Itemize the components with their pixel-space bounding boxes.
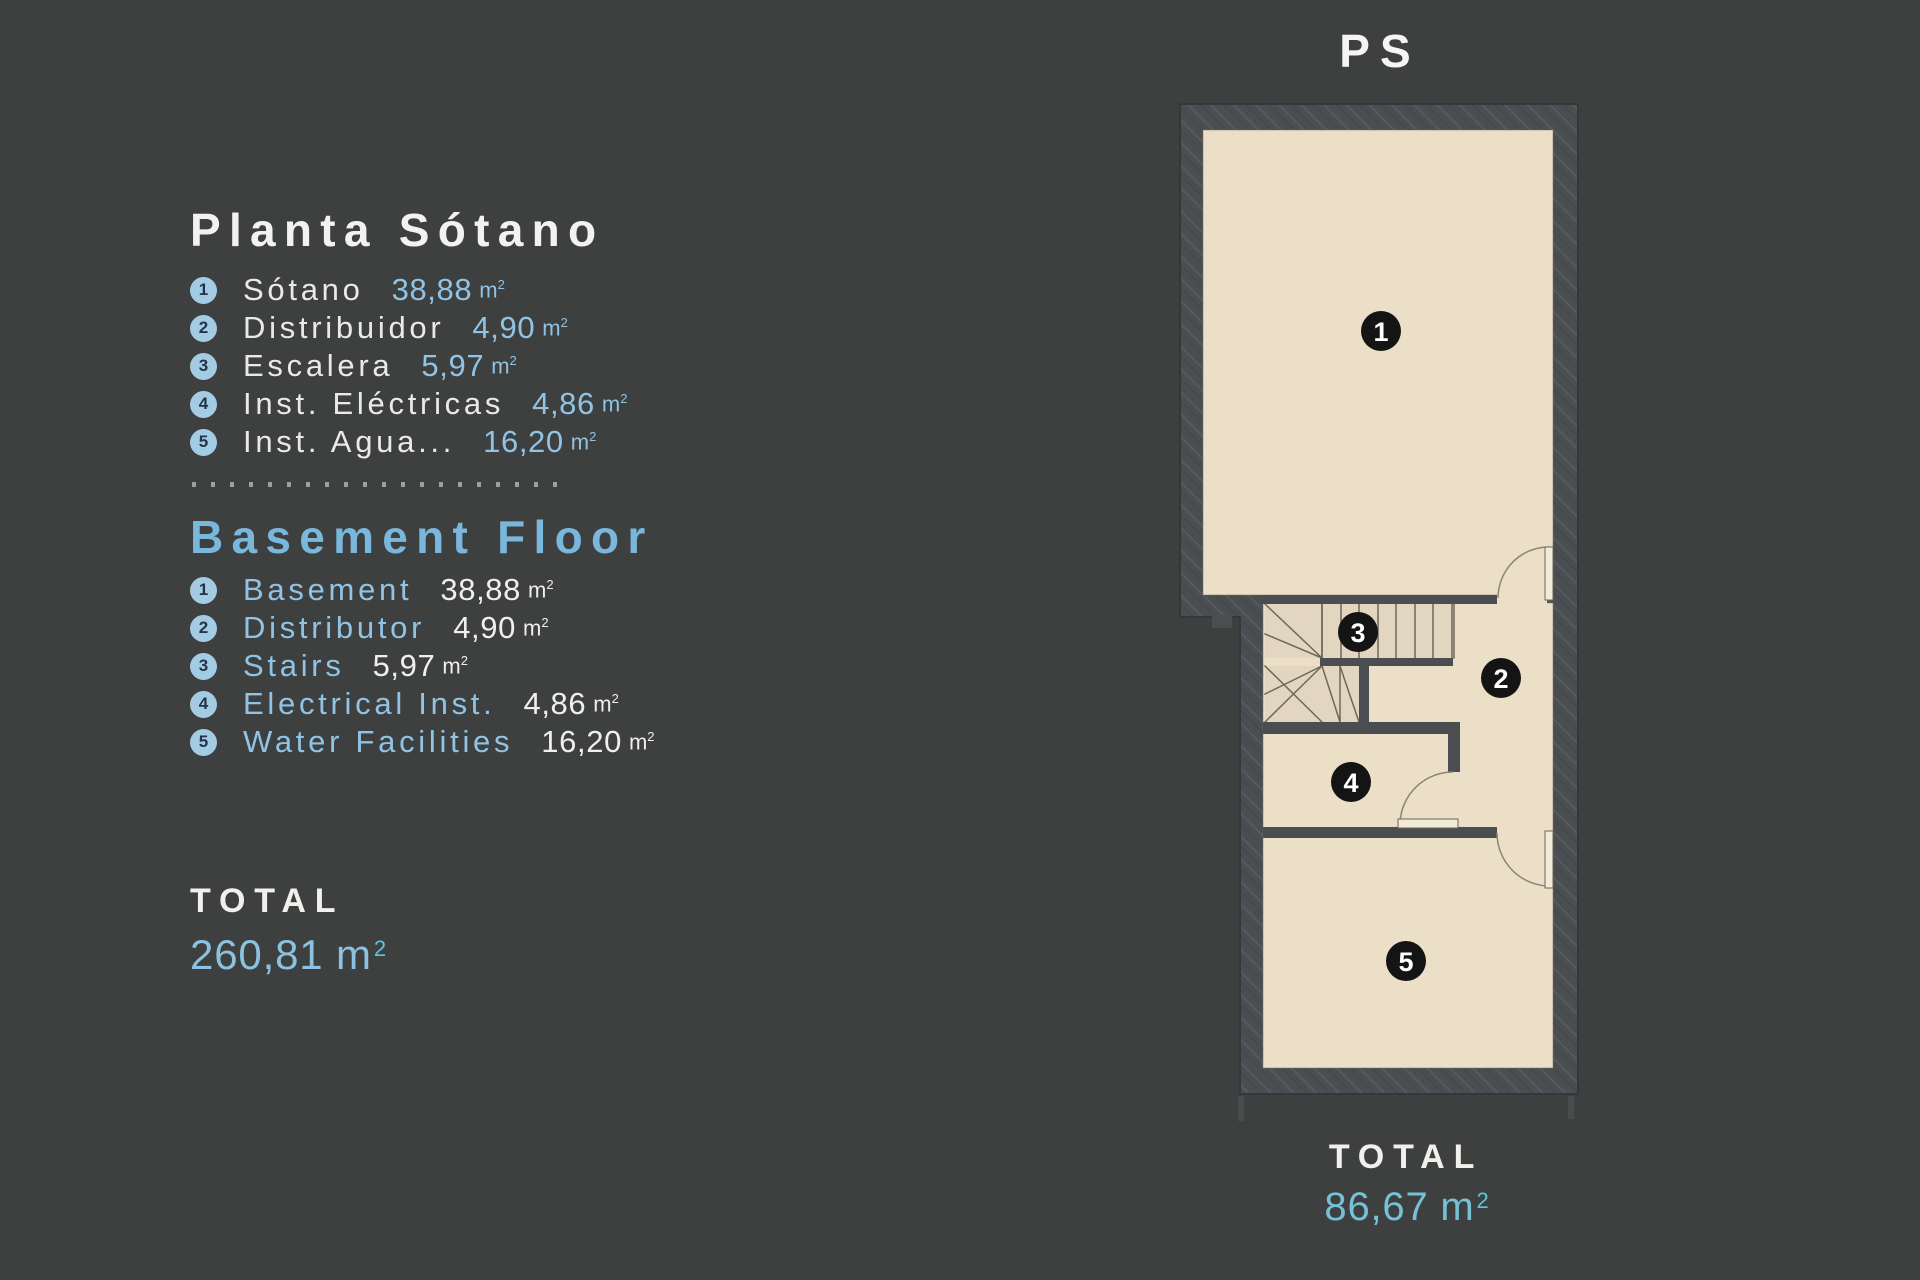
door-leaf-room5 xyxy=(1545,831,1553,888)
room-area: 16,20 xyxy=(483,424,564,460)
room-area: 4,90 xyxy=(453,610,516,646)
legend-badge-3: 3 xyxy=(190,653,217,680)
plan-total: TOTAL 86,67 m2 xyxy=(1256,1138,1556,1230)
total-value: 86,67 m2 xyxy=(1256,1185,1556,1230)
room-area: 38,88 xyxy=(392,272,473,308)
legend-row-es-3: 3 Escalera 5,97 m2 xyxy=(190,347,627,385)
area-unit: m2 xyxy=(479,277,505,303)
legend-badge-5: 5 xyxy=(190,429,217,456)
legend-badge-4: 4 xyxy=(190,691,217,718)
plan-badge-5: 5 xyxy=(1386,941,1426,981)
room-name: Water Facilities xyxy=(243,724,513,760)
total-label: TOTAL xyxy=(190,882,385,921)
room-area: 4,90 xyxy=(472,310,535,346)
area-unit: m2 xyxy=(542,315,568,341)
legend-list-english: 1 Basement 38,88 m2 2 Distributor 4,90 m… xyxy=(190,571,655,761)
legend-row-en-4: 4 Electrical Inst. 4,86 m2 xyxy=(190,685,655,723)
total-value: 260,81 m2 xyxy=(190,931,385,979)
area-unit: m2 xyxy=(629,729,655,755)
total-label: TOTAL xyxy=(1256,1138,1556,1177)
svg-text:4: 4 xyxy=(1343,768,1358,798)
legend-row-en-5: 5 Water Facilities 16,20 m2 xyxy=(190,723,655,761)
room-name: Electrical Inst. xyxy=(243,686,495,722)
room-name: Stairs xyxy=(243,648,345,684)
room-name: Sótano xyxy=(243,272,364,308)
legend-badge-2: 2 xyxy=(190,315,217,342)
room-name: Distribuidor xyxy=(243,310,444,346)
room-area: 4,86 xyxy=(523,686,586,722)
legend-badge-1: 1 xyxy=(190,577,217,604)
legend-row-en-1: 1 Basement 38,88 m2 xyxy=(190,571,655,609)
legend-title-english: Basement Floor xyxy=(190,510,654,564)
area-unit: m2 xyxy=(442,653,468,679)
dotted-separator xyxy=(192,482,564,487)
plan-badge-4: 4 xyxy=(1331,762,1371,802)
legend-badge-2: 2 xyxy=(190,615,217,642)
legend-badge-1: 1 xyxy=(190,277,217,304)
svg-text:2: 2 xyxy=(1493,664,1508,694)
room-name: Inst. Agua... xyxy=(243,424,455,460)
door-leaf-room1 xyxy=(1545,547,1553,600)
legend-badge-5: 5 xyxy=(190,729,217,756)
legend-title-spanish: Planta Sótano xyxy=(190,203,604,257)
room-area: 4,86 xyxy=(532,386,595,422)
room-basement-floor xyxy=(1203,130,1553,595)
legend-row-es-5: 5 Inst. Agua... 16,20 m2 xyxy=(190,423,627,461)
area-unit: m2 xyxy=(523,615,549,641)
door-opening-1 xyxy=(1497,594,1547,604)
svg-text:1: 1 xyxy=(1373,317,1388,347)
area-unit: m2 xyxy=(571,429,597,455)
legend-row-en-3: 3 Stairs 5,97 m2 xyxy=(190,647,655,685)
room-area: 16,20 xyxy=(541,724,622,760)
room-area: 5,97 xyxy=(373,648,436,684)
room-name: Escalera xyxy=(243,348,393,384)
legend-row-es-1: 1 Sótano 38,88 m2 xyxy=(190,271,627,309)
plan-badge-2: 2 xyxy=(1481,658,1521,698)
legend-row-es-4: 4 Inst. Eléctricas 4,86 m2 xyxy=(190,385,627,423)
room-name: Basement xyxy=(243,572,412,608)
area-unit: m2 xyxy=(528,577,554,603)
page: 1 2 3 4 5 Planta Sótano 1 Sótano xyxy=(0,0,1920,1280)
plan-badge-3: 3 xyxy=(1338,612,1378,652)
legend-badge-3: 3 xyxy=(190,353,217,380)
plan-title: PS xyxy=(1255,24,1505,78)
room-name: Inst. Eléctricas xyxy=(243,386,504,422)
door-leaf-room4 xyxy=(1398,819,1458,828)
legend-badge-4: 4 xyxy=(190,391,217,418)
area-unit: m2 xyxy=(593,691,619,717)
room-name: Distributor xyxy=(243,610,425,646)
legend-list-spanish: 1 Sótano 38,88 m2 2 Distribuidor 4,90 m2… xyxy=(190,271,627,461)
legend-row-es-2: 2 Distribuidor 4,90 m2 xyxy=(190,309,627,347)
room-area: 38,88 xyxy=(440,572,521,608)
room-area: 5,97 xyxy=(421,348,484,384)
plan-badge-1: 1 xyxy=(1361,311,1401,351)
area-unit: m2 xyxy=(602,391,628,417)
svg-text:3: 3 xyxy=(1350,618,1365,648)
svg-text:5: 5 xyxy=(1398,947,1413,977)
legend-row-en-2: 2 Distributor 4,90 m2 xyxy=(190,609,655,647)
legend-total: TOTAL 260,81 m2 xyxy=(190,882,385,979)
area-unit: m2 xyxy=(491,353,517,379)
